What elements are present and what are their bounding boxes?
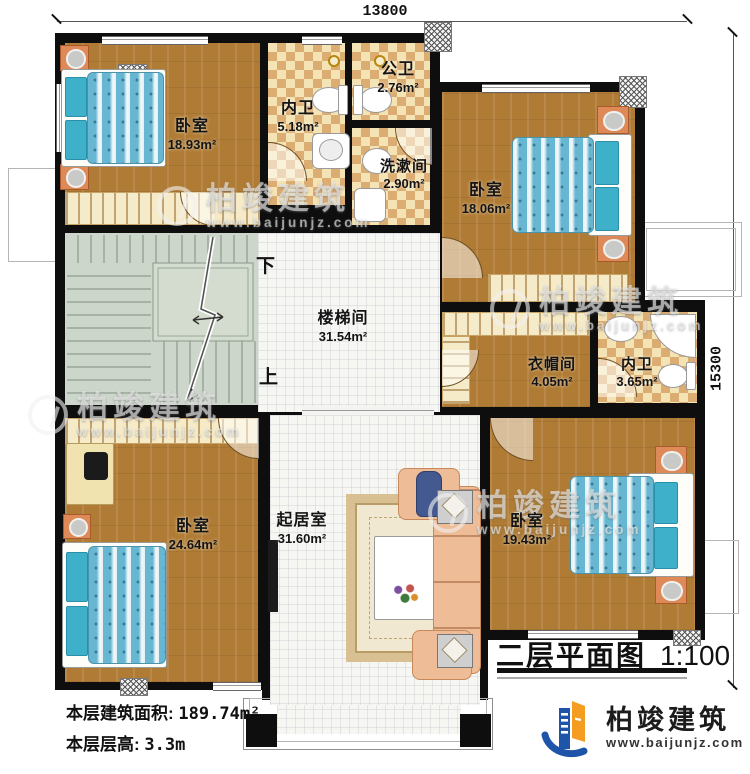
room-label-living-room: 起居室 31.60m² [247,511,357,546]
watermark-logo-icon [428,493,468,533]
brand-text-group: 柏竣建筑 www.baijunjz.com [606,706,744,751]
mattress [88,546,166,664]
window [213,682,261,691]
brand-site: www.baijunjz.com [606,735,744,750]
stair-down-label: 下 [256,251,275,278]
toilet-tank [686,362,696,390]
watermark: 柏竣建筑 www.baijunjz.com [28,392,242,439]
pillow [66,552,88,602]
room-label-bath-inner-right: 内卫 3.65m² [592,356,682,390]
nightstand [655,576,687,604]
column [460,714,491,747]
nightstand [655,446,687,474]
watermark-logo-icon [490,289,530,329]
dimension-tick [682,14,693,25]
room-area: 19.43m² [503,532,551,548]
nightstand [60,164,89,190]
room-name: 卧室 [176,517,210,537]
room-label-stairwell: 楼梯间 31.54m² [288,309,398,344]
room-area: 24.64m² [169,537,217,553]
hatch-mark [424,22,452,52]
room-area: 18.06m² [462,201,510,217]
living-room-opening [302,406,434,415]
floor-area-label: 本层建筑面积: [66,704,174,723]
dimension-right-value: 15300 [709,339,726,399]
nightstand [60,45,89,71]
title-underline-thin [497,677,687,679]
watermark-brand-text: 柏竣建筑 [77,392,242,425]
room-name: 内卫 [281,99,315,119]
room-label-cloakroom: 衣帽间 4.05m² [497,356,607,390]
room-label-bath-inner-top: 内卫 5.18m² [263,99,333,134]
stairs [65,233,258,405]
pillow [65,120,87,160]
balcony-outline [646,228,736,291]
room-name: 起居室 [276,511,327,531]
dimension-tick [51,14,62,25]
watermark-logo-icon [28,395,68,435]
room-name: 洗漱间 [380,158,428,176]
watermark-logo-icon [157,186,197,226]
terrace-floor [277,700,461,734]
toilet-tank [338,85,348,115]
room-area: 31.60m² [278,531,326,547]
room-area: 31.54m² [319,329,367,345]
pillow [65,77,87,117]
watermark: 柏竣建筑 www.baijunjz.com [490,286,704,333]
room-label-bedroom-tl: 卧室 18.93m² [137,117,247,152]
watermark-brand-text: 柏竣建筑 [206,183,371,216]
nightstand [597,234,629,262]
watermark-url-text: www.baijunjz.com [77,425,242,439]
room-name: 内卫 [621,356,653,374]
room-name: 公卫 [381,60,415,80]
floor-height-label: 本层层高: [66,735,140,754]
floor-height-row: 本层层高: 3.3m [66,730,260,761]
window [482,84,590,93]
brand-name: 柏竣建筑 [606,706,744,736]
pillow [595,141,619,185]
nightstand [63,514,91,539]
room-label-bedroom-br: 卧室 19.43m² [472,512,582,547]
room-area: 18.93m² [168,137,216,153]
floor-area-row: 本层建筑面积: 189.74m² [66,699,260,730]
room-area: 2.76m² [377,80,418,96]
pillow [654,527,678,569]
brand-logo: 柏竣建筑 www.baijunjz.com [540,696,744,760]
floor-height-value: 3.3m [144,735,185,755]
watermark-url-text: www.baijunjz.com [206,216,371,230]
pillow [654,482,678,524]
window [302,36,342,45]
room-area: 5.18m² [277,119,318,135]
sink [319,139,343,161]
room-name: 衣帽间 [528,356,576,374]
nightstand [597,106,629,134]
brand-logo-icon [540,696,598,760]
room-name: 楼梯间 [317,309,368,329]
room-area: 4.05m² [531,374,572,390]
room-area: 3.65m² [616,374,657,390]
watermark: 柏竣建筑 www.baijunjz.com [157,183,371,230]
desk-chair [84,452,108,480]
watermark-brand-text: 柏竣建筑 [539,286,704,319]
side-table-lamp [437,634,473,668]
floor-area-value: 189.74m² [178,704,260,724]
room-name: 卧室 [469,181,503,201]
hatch-mark [120,678,148,696]
dimension-top-value: 13800 [355,3,415,20]
tv [268,540,278,612]
pillow [595,187,619,231]
dimension-line-top [57,21,687,22]
room-label-bath-public: 公卫 2.76m² [362,60,434,95]
pillow [66,606,88,656]
room-area: 2.90m² [383,176,424,192]
title-underline-thick [497,668,687,673]
stair-up-label: 上 [259,362,278,389]
window [102,36,208,45]
floor-stats: 本层建筑面积: 189.74m² 本层层高: 3.3m [66,699,260,761]
room-name: 卧室 [175,117,209,137]
hatch-mark [619,76,647,108]
watermark-url-text: www.baijunjz.com [539,319,704,333]
room-name: 卧室 [510,512,544,532]
room-label-bedroom-tr: 卧室 18.06m² [431,181,541,216]
wall-fixture-knob [328,55,340,67]
room-label-bedroom-bl: 卧室 24.64m² [138,517,248,552]
table-flowers [388,580,422,608]
floor-plan-canvas: 13800 15300 [0,0,750,774]
